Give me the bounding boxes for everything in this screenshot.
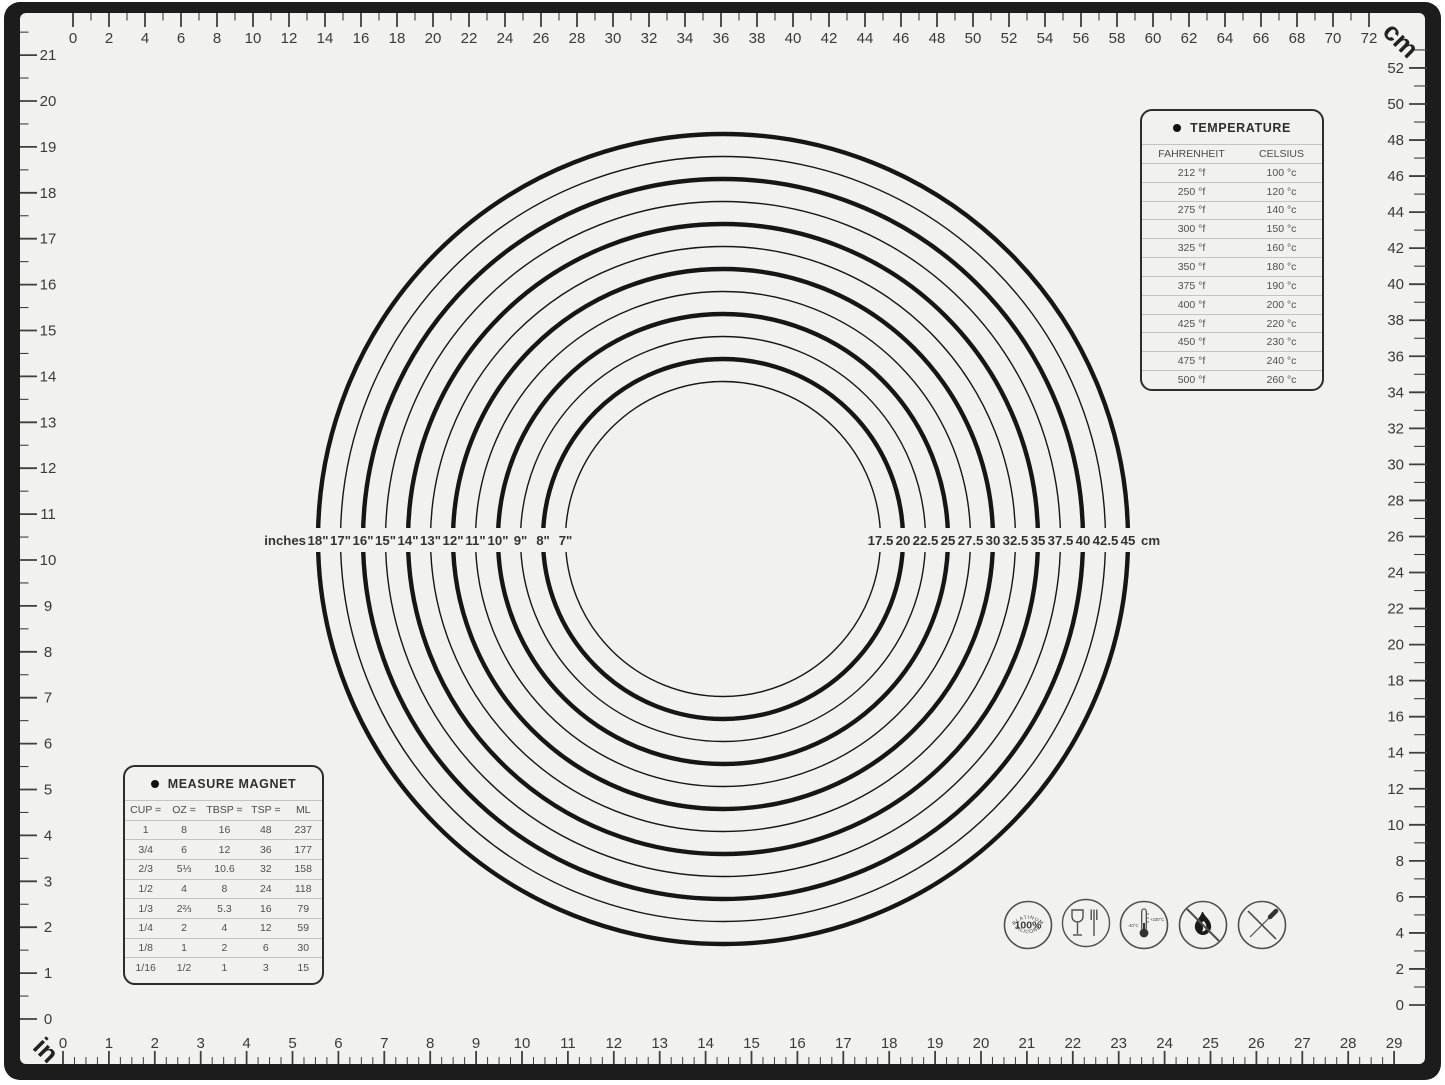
table-row: 1/161/21315 — [125, 957, 322, 977]
circle-cm-label: 30 — [986, 533, 1001, 548]
ruler-number: 10 — [1387, 817, 1404, 834]
table-cell: 79 — [285, 903, 322, 915]
ruler-number: 20 — [425, 30, 442, 47]
food-safe-icon — [1058, 895, 1114, 951]
ruler-number: 12 — [281, 30, 298, 47]
table-cell: 59 — [285, 922, 322, 934]
ruler-number: 44 — [1387, 204, 1404, 221]
measure-rows: CUP =OZ =TBSP =TSP =ML1816482373/4612361… — [125, 800, 322, 977]
ruler-number: 54 — [1037, 30, 1054, 47]
ruler-number: 3 — [44, 873, 52, 890]
table-cell: 180 °c — [1241, 261, 1322, 273]
ruler-number: 26 — [1248, 1035, 1265, 1052]
circle-cm-label: 32.5 — [1003, 533, 1029, 548]
table-row: 425 °f220 °c — [1142, 314, 1322, 333]
table-cell: ML — [285, 804, 322, 816]
ruler-number: 58 — [1109, 30, 1126, 47]
ruler-number: 24 — [497, 30, 514, 47]
table-cell: CUP = — [125, 804, 166, 816]
table-row: 275 °f140 °c — [1142, 201, 1322, 220]
table-cell: 2⅔ — [166, 903, 201, 915]
ruler-number: 29 — [1386, 1035, 1403, 1052]
ruler-number: 6 — [44, 736, 52, 753]
table-cell: 1/2 — [166, 962, 201, 974]
measure-title-text: MEASURE MAGNET — [168, 777, 297, 791]
table-cell: 12 — [247, 922, 284, 934]
ruler-number: 32 — [1387, 420, 1404, 437]
ruler-number: 1 — [44, 965, 52, 982]
table-row: 181648237 — [125, 820, 322, 840]
ruler-number: 30 — [1387, 456, 1404, 473]
no-open-flame-icon — [1175, 897, 1231, 953]
table-row: 325 °f160 °c — [1142, 238, 1322, 257]
ruler-number: 16 — [789, 1035, 806, 1052]
ruler-number: 10 — [514, 1035, 531, 1052]
ruler-number: 10 — [40, 552, 57, 569]
ruler-number: 15 — [40, 323, 57, 340]
ruler-number: 30 — [605, 30, 622, 47]
ruler-number: 15 — [743, 1035, 760, 1052]
circle-inch-label: 8" — [536, 533, 550, 548]
table-cell: 275 °f — [1142, 204, 1241, 216]
table-cell: 120 °c — [1241, 186, 1322, 198]
table-cell: 30 — [285, 942, 322, 954]
ruler-number: 68 — [1289, 30, 1306, 47]
table-cell: 1 — [202, 962, 247, 974]
circle-cm-label: 45 — [1121, 533, 1136, 548]
table-cell: 2/3 — [125, 863, 166, 875]
table-cell: 375 °f — [1142, 280, 1241, 292]
ruler-number: 4 — [242, 1035, 250, 1052]
circle-label-suffix: cm — [1141, 533, 1160, 548]
ruler-number: 40 — [785, 30, 802, 47]
circle-label-prefix: inches — [264, 533, 306, 548]
temperature-title: TEMPERATURE — [1142, 111, 1322, 144]
table-cell: 2 — [166, 922, 201, 934]
ruler-number: 26 — [1387, 528, 1404, 545]
table-cell: 237 — [285, 824, 322, 836]
bullet-icon — [151, 780, 159, 788]
table-cell: 1/4 — [125, 922, 166, 934]
ruler-number: 50 — [965, 30, 982, 47]
ruler-number: 42 — [821, 30, 838, 47]
ruler-number: 8 — [1396, 853, 1404, 870]
table-cell: 250 °f — [1142, 186, 1241, 198]
table-cell: 1/16 — [125, 962, 166, 974]
table-row: 212 °f100 °c — [1142, 163, 1322, 182]
temperature-title-text: TEMPERATURE — [1190, 121, 1291, 135]
temperature-range-icon: -40°C +230°C — [1116, 897, 1172, 953]
ruler-number: 7 — [44, 690, 52, 707]
ruler-number: 44 — [857, 30, 874, 47]
ruler-number: 5 — [44, 782, 52, 799]
table-cell: 15 — [285, 962, 322, 974]
table-cell: 1/2 — [125, 883, 166, 895]
temp-min-text: -40°C — [1128, 923, 1139, 928]
ruler-number: 22 — [461, 30, 478, 47]
ruler-number: 28 — [569, 30, 586, 47]
ruler-number: 2 — [105, 30, 113, 47]
table-cell: TBSP = — [202, 804, 247, 816]
ruler-number: 23 — [1110, 1035, 1127, 1052]
circle-cm-label: 35 — [1031, 533, 1046, 548]
temp-max-text: +230°C — [1150, 917, 1164, 922]
ruler-number: 20 — [973, 1035, 990, 1052]
table-cell: 32 — [247, 863, 284, 875]
ruler-number: 6 — [334, 1035, 342, 1052]
table-row: 1/812630 — [125, 938, 322, 958]
table-cell: 24 — [247, 883, 284, 895]
ruler-number: 18 — [40, 185, 57, 202]
ruler-number: 11 — [40, 506, 56, 523]
ruler-number: 16 — [40, 277, 57, 294]
table-cell: 6 — [166, 844, 201, 856]
table-cell: TSP = — [247, 804, 284, 816]
table-cell: 1/3 — [125, 903, 166, 915]
ruler-number: 46 — [1387, 168, 1404, 185]
ruler-number: 22 — [1064, 1035, 1081, 1052]
ruler-number: 12 — [605, 1035, 622, 1052]
table-row: 1/24824118 — [125, 879, 322, 899]
table-cell: 8 — [166, 824, 201, 836]
ruler-number: 70 — [1325, 30, 1342, 47]
circle-cm-label: 22.5 — [913, 533, 939, 548]
table-cell: 3/4 — [125, 844, 166, 856]
ruler-number: 18 — [1387, 673, 1404, 690]
ruler-number: 16 — [1387, 709, 1404, 726]
table-cell: OZ = — [166, 804, 201, 816]
table-cell: 240 °c — [1241, 355, 1322, 367]
table-cell: 118 — [285, 883, 322, 895]
ruler-number: 9 — [44, 598, 52, 615]
table-cell: 10.6 — [202, 863, 247, 875]
table-row: 3/461236177 — [125, 839, 322, 859]
table-cell: FAHRENHEIT — [1142, 148, 1241, 160]
ruler-number: 11 — [560, 1035, 576, 1052]
circle-cm-label: 17.5 — [868, 533, 894, 548]
circle-cm-label: 25 — [941, 533, 956, 548]
ruler-number: 42 — [1387, 240, 1404, 257]
ruler-number: 5 — [288, 1035, 296, 1052]
ruler-number: 3 — [197, 1035, 205, 1052]
ruler-number: 13 — [40, 414, 57, 431]
ruler-number: 10 — [245, 30, 262, 47]
table-row: 250 °f120 °c — [1142, 182, 1322, 201]
ruler-number: 32 — [641, 30, 658, 47]
ruler-number: 36 — [1387, 348, 1404, 365]
circle-cm-label: 37.5 — [1048, 533, 1074, 548]
table-cell: 260 °c — [1241, 374, 1322, 386]
circle-inch-label: 9" — [514, 533, 528, 548]
table-cell: 475 °f — [1142, 355, 1241, 367]
circle-inch-label: 16" — [353, 533, 374, 548]
table-row: 500 °f260 °c — [1142, 370, 1322, 389]
circle-inch-label: 17" — [330, 533, 351, 548]
circle-cm-label: 40 — [1076, 533, 1091, 548]
ruler-number: 24 — [1387, 565, 1404, 582]
ruler-number: 50 — [1387, 96, 1404, 113]
ruler-number: 40 — [1387, 276, 1404, 293]
table-cell: 150 °c — [1241, 223, 1322, 235]
table-cell: 400 °f — [1142, 299, 1241, 311]
ruler-number: 6 — [1396, 889, 1404, 906]
platinum-silicone-icon: PLATINUM 100% SILICONE — [1000, 897, 1056, 953]
ruler-number: 34 — [677, 30, 694, 47]
circle-inch-label: 14" — [398, 533, 419, 548]
ruler-number: 38 — [749, 30, 766, 47]
table-cell: 158 — [285, 863, 322, 875]
ruler-number: 20 — [1387, 637, 1404, 654]
ruler-number: 72 — [1361, 30, 1378, 47]
ruler-number: 66 — [1253, 30, 1270, 47]
table-row: 1/32⅔5.31679 — [125, 898, 322, 918]
ruler-number: 28 — [1387, 492, 1404, 509]
ruler-number: 22 — [1387, 601, 1404, 618]
table-cell: 1/8 — [125, 942, 166, 954]
ruler-number: 7 — [380, 1035, 388, 1052]
ruler-number: 18 — [389, 30, 406, 47]
table-cell: 2 — [202, 942, 247, 954]
unit-cm-label: cm — [1377, 16, 1425, 64]
table-row: 1/4241259 — [125, 918, 322, 938]
ruler-number: 62 — [1181, 30, 1198, 47]
ruler-number: 18 — [881, 1035, 898, 1052]
ruler-number: 46 — [893, 30, 910, 47]
ruler-number: 17 — [40, 231, 57, 248]
circle-cm-label: 27.5 — [958, 533, 984, 548]
table-cell: 36 — [247, 844, 284, 856]
ruler-number: 19 — [40, 139, 57, 156]
table-row: 375 °f190 °c — [1142, 276, 1322, 295]
circle-cm-label: 20 — [896, 533, 911, 548]
ruler-number: 48 — [929, 30, 946, 47]
ruler-number: 0 — [44, 1011, 52, 1028]
ruler-number: 17 — [835, 1035, 852, 1052]
circle-inch-label: 10" — [488, 533, 509, 548]
measure-title: MEASURE MAGNET — [125, 767, 322, 800]
ruler-number: 24 — [1156, 1035, 1173, 1052]
ruler-number: 38 — [1387, 312, 1404, 329]
ruler-number: 8 — [213, 30, 221, 47]
temperature-rows: FAHRENHEITCELSIUS212 °f100 °c250 °f120 °… — [1142, 144, 1322, 389]
ruler-number: 2 — [151, 1035, 159, 1052]
ruler-number: 8 — [44, 644, 52, 661]
table-cell: 6 — [247, 942, 284, 954]
table-cell: 16 — [202, 824, 247, 836]
table-cell: 300 °f — [1142, 223, 1241, 235]
table-cell: 177 — [285, 844, 322, 856]
table-cell: 4 — [202, 922, 247, 934]
ruler-number: 6 — [177, 30, 185, 47]
table-cell: 220 °c — [1241, 318, 1322, 330]
circle-inch-label: 13" — [420, 533, 441, 548]
table-cell: CELSIUS — [1241, 148, 1322, 160]
ruler-number: 20 — [40, 93, 57, 110]
ruler-number: 9 — [472, 1035, 480, 1052]
table-cell: 8 — [202, 883, 247, 895]
table-row: 450 °f230 °c — [1142, 332, 1322, 351]
ruler-number: 8 — [426, 1035, 434, 1052]
table-row: 400 °f200 °c — [1142, 295, 1322, 314]
ruler-number: 56 — [1073, 30, 1090, 47]
ruler-number: 2 — [1396, 961, 1404, 978]
ruler-number: 36 — [713, 30, 730, 47]
ruler-number: 19 — [927, 1035, 944, 1052]
table-row: 350 °f180 °c — [1142, 257, 1322, 276]
table-cell: 140 °c — [1241, 204, 1322, 216]
table-cell: 100 °c — [1241, 167, 1322, 179]
ruler-number: 25 — [1202, 1035, 1219, 1052]
bullet-icon — [1173, 124, 1181, 132]
ruler-number: 14 — [1387, 745, 1404, 762]
ruler-number: 0 — [69, 30, 77, 47]
ruler-number: 14 — [697, 1035, 714, 1052]
ruler-number: 26 — [533, 30, 550, 47]
ruler-number: 52 — [1387, 60, 1404, 77]
circle-inch-label: 15" — [375, 533, 396, 548]
table-cell: 230 °c — [1241, 336, 1322, 348]
ruler-number: 28 — [1340, 1035, 1357, 1052]
table-cell: 450 °f — [1142, 336, 1241, 348]
measure-table: MEASURE MAGNET CUP =OZ =TBSP =TSP =ML181… — [123, 765, 324, 985]
ruler-number: 21 — [1019, 1035, 1036, 1052]
table-cell: 1 — [125, 824, 166, 836]
table-cell: 3 — [247, 962, 284, 974]
ruler-number: 0 — [1396, 997, 1404, 1014]
table-row: 2/35⅓10.632158 — [125, 859, 322, 879]
ruler-number: 34 — [1387, 384, 1404, 401]
circle-inch-label: 7" — [559, 533, 573, 548]
ruler-number: 60 — [1145, 30, 1162, 47]
table-cell: 5⅓ — [166, 863, 201, 875]
table-cell: 160 °c — [1241, 242, 1322, 254]
table-cell: 1 — [166, 942, 201, 954]
table-cell: 350 °f — [1142, 261, 1241, 273]
ruler-number: 64 — [1217, 30, 1234, 47]
ruler-number: 14 — [317, 30, 334, 47]
ruler-number: 52 — [1001, 30, 1018, 47]
ruler-number: 27 — [1294, 1035, 1311, 1052]
table-cell: 12 — [202, 844, 247, 856]
table-cell: 190 °c — [1241, 280, 1322, 292]
table-cell: 16 — [247, 903, 284, 915]
measurement-circle — [566, 382, 881, 697]
ruler-number: 21 — [40, 47, 57, 64]
table-cell: 200 °c — [1241, 299, 1322, 311]
ruler-number: 48 — [1387, 132, 1404, 149]
ruler-number: 4 — [1396, 925, 1404, 942]
no-sharp-objects-icon — [1234, 897, 1290, 953]
table-header-row: FAHRENHEITCELSIUS — [1142, 144, 1322, 163]
table-row: 475 °f240 °c — [1142, 351, 1322, 370]
baking-mat-photo: 0246810121416182022242628303234363840424… — [0, 0, 1445, 1085]
ruler-number: 2 — [44, 919, 52, 936]
table-cell: 500 °f — [1142, 374, 1241, 386]
ruler-number: 16 — [353, 30, 370, 47]
table-cell: 48 — [247, 824, 284, 836]
table-row: 300 °f150 °c — [1142, 219, 1322, 238]
circle-inch-label: 11" — [465, 533, 485, 548]
circle-cm-label: 42.5 — [1093, 533, 1119, 548]
ruler-number: 14 — [40, 368, 57, 385]
ruler-number: 13 — [651, 1035, 668, 1052]
ruler-number: 4 — [44, 827, 52, 844]
table-cell: 325 °f — [1142, 242, 1241, 254]
temperature-table: TEMPERATURE FAHRENHEITCELSIUS212 °f100 °… — [1140, 109, 1324, 391]
table-cell: 212 °f — [1142, 167, 1241, 179]
circle-inch-label: 18" — [308, 533, 329, 548]
table-cell: 425 °f — [1142, 318, 1241, 330]
ruler-number: 12 — [40, 460, 57, 477]
ruler-number: 4 — [141, 30, 149, 47]
ruler-number: 12 — [1387, 781, 1404, 798]
table-cell: 4 — [166, 883, 201, 895]
ruler-number: 1 — [105, 1035, 113, 1052]
circle-inch-label: 12" — [443, 533, 464, 548]
table-cell: 5.3 — [202, 903, 247, 915]
table-header-row: CUP =OZ =TBSP =TSP =ML — [125, 800, 322, 820]
